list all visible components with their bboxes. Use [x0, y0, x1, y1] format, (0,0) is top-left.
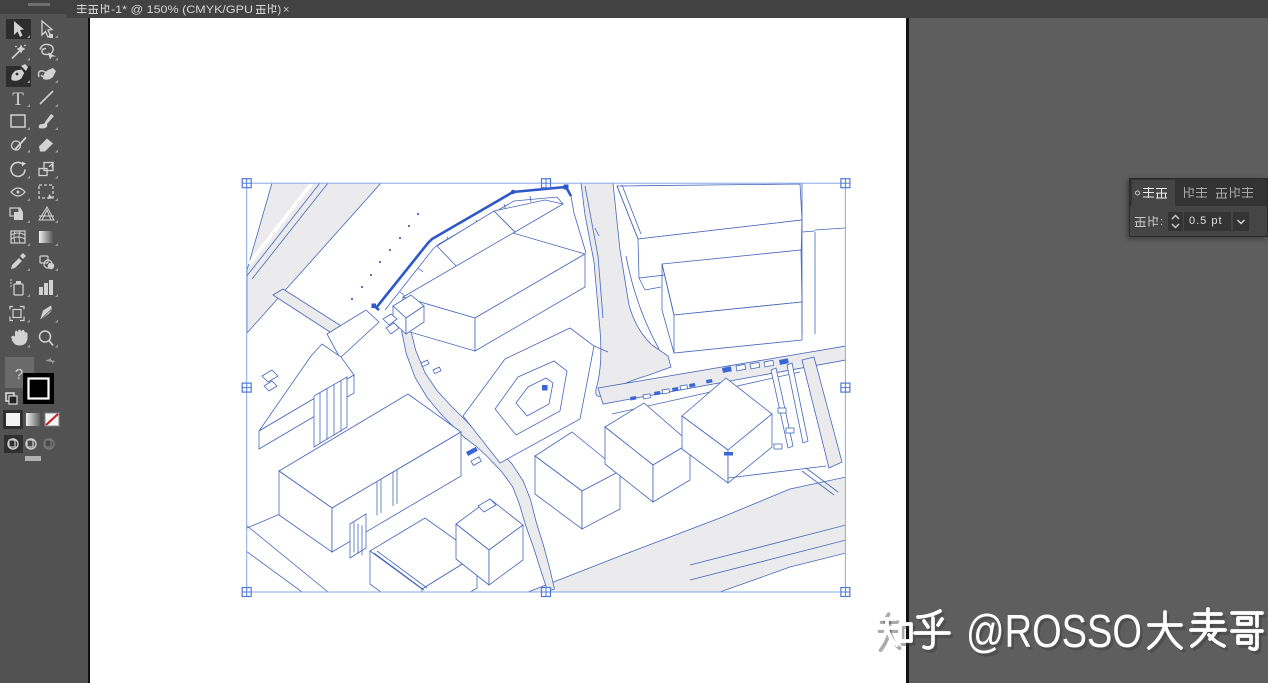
svg-text:@ROSSO: @ROSSO [966, 605, 1142, 657]
